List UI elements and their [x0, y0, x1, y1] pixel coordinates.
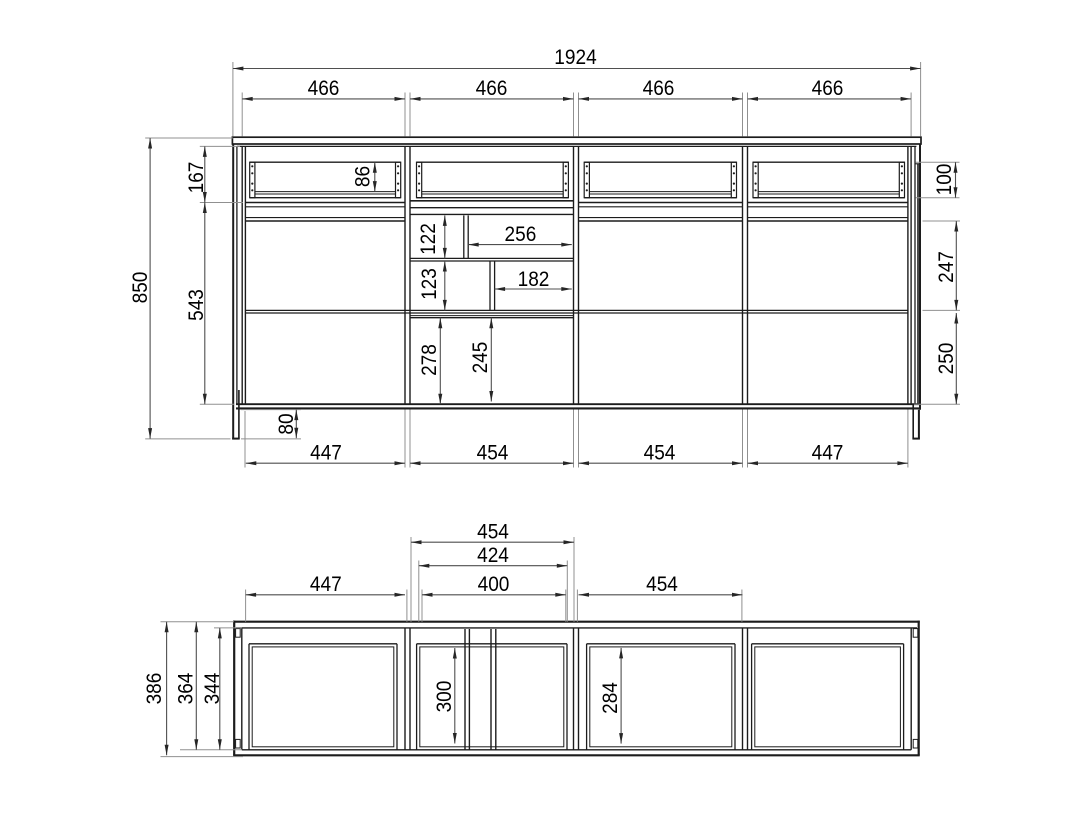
svg-text:447: 447 [812, 441, 844, 464]
svg-text:447: 447 [310, 441, 342, 464]
svg-text:454: 454 [644, 441, 676, 464]
svg-text:100: 100 [933, 164, 956, 196]
svg-text:80: 80 [275, 413, 298, 434]
svg-text:424: 424 [477, 544, 509, 567]
svg-text:447: 447 [310, 573, 342, 596]
svg-text:466: 466 [643, 77, 675, 100]
svg-text:364: 364 [174, 672, 197, 704]
svg-text:182: 182 [518, 268, 550, 291]
svg-text:250: 250 [935, 343, 958, 375]
svg-text:466: 466 [812, 77, 844, 100]
svg-text:454: 454 [646, 573, 678, 596]
svg-text:300: 300 [433, 681, 456, 713]
svg-text:850: 850 [129, 272, 152, 304]
svg-text:122: 122 [417, 223, 440, 255]
svg-text:245: 245 [469, 342, 492, 374]
svg-text:400: 400 [478, 573, 510, 596]
svg-text:454: 454 [477, 521, 509, 544]
svg-text:454: 454 [477, 441, 509, 464]
svg-text:466: 466 [476, 77, 508, 100]
svg-text:167: 167 [185, 162, 208, 194]
svg-text:386: 386 [143, 673, 166, 705]
svg-text:278: 278 [418, 344, 441, 376]
svg-text:256: 256 [505, 223, 537, 246]
svg-text:1924: 1924 [554, 46, 597, 69]
svg-text:123: 123 [418, 268, 441, 300]
svg-text:86: 86 [352, 166, 375, 187]
svg-text:344: 344 [201, 672, 224, 704]
svg-text:466: 466 [308, 77, 340, 100]
svg-text:247: 247 [935, 251, 958, 283]
svg-text:284: 284 [599, 682, 622, 714]
svg-text:543: 543 [185, 289, 208, 321]
